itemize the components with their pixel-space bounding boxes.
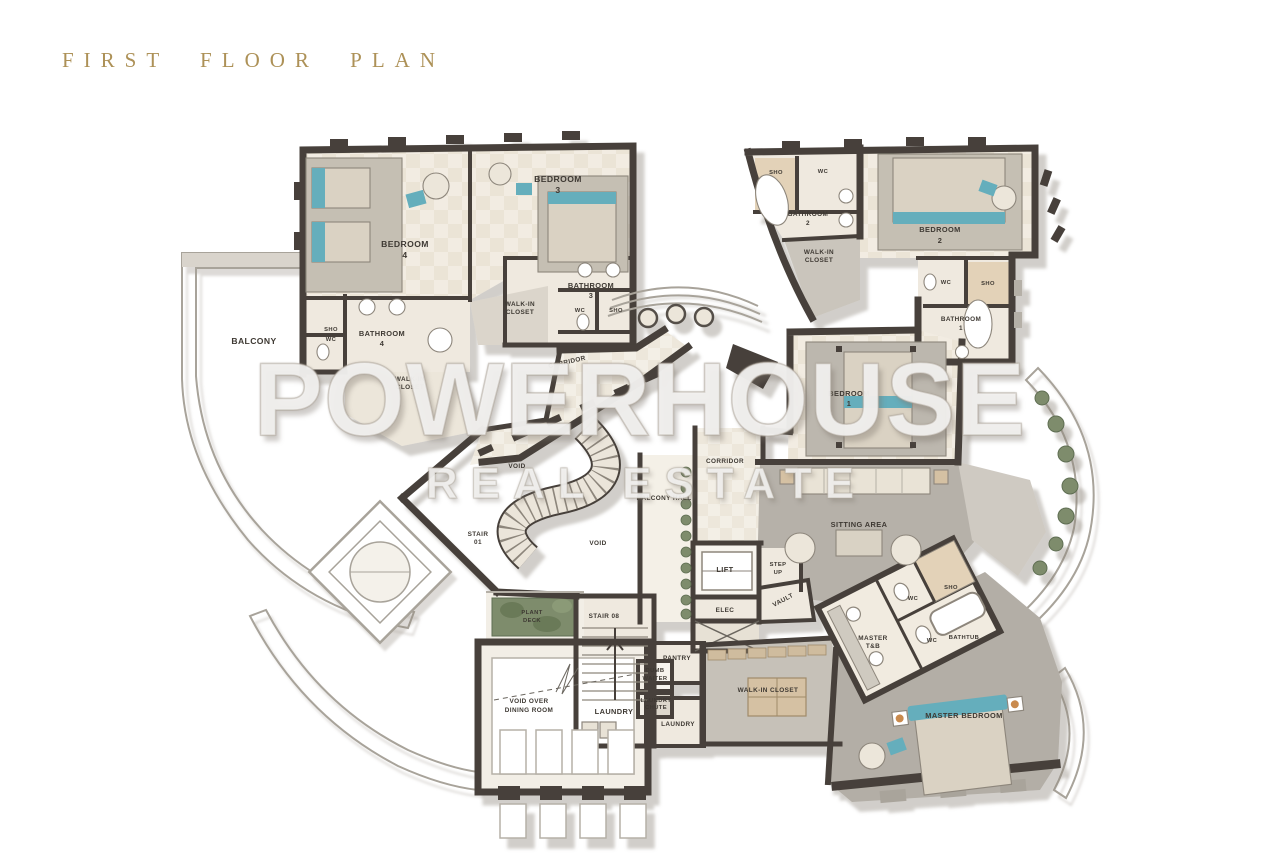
lift-label: LIFT: [716, 565, 733, 574]
sho-b4-label: SHO: [324, 327, 338, 333]
balcony-hall-label: BALCONY HALL: [636, 495, 691, 502]
bathroom-2-label: BATHROOM: [788, 211, 828, 218]
building-mass: [294, 131, 1078, 838]
bedroom-2-label: BEDROOM: [919, 225, 960, 234]
bathroom-2-num: 2: [806, 220, 810, 227]
bedroom-3-chair: [489, 163, 511, 185]
terrace-stone-floor: [958, 462, 1046, 576]
canopy-post: [836, 442, 842, 448]
plant-deck-green: [492, 598, 578, 636]
bedroom-4-chair: [423, 173, 449, 199]
pillow: [312, 168, 325, 208]
bathroom-1-toilet: [924, 274, 936, 290]
laundry-chute-label: LAUNDRY: [641, 698, 672, 704]
plant-deck-label2: DECK: [523, 618, 541, 624]
bathroom-1-sink: [956, 346, 969, 359]
column: [667, 305, 685, 323]
dumb-waiter-label2: WAITER: [643, 676, 668, 682]
step-up-label2: UP: [774, 570, 783, 576]
laundry-chute-label2: CHUTE: [645, 705, 667, 711]
wc-b1-label: WC: [941, 280, 952, 286]
bathroom-2-sink: [839, 189, 853, 203]
bathroom-1-label: BATHROOM: [941, 316, 981, 323]
sho-b1-label: SHO: [981, 281, 995, 287]
sitting-area-label: SITTING AREA: [831, 520, 888, 529]
bathroom-3-sink: [578, 263, 592, 277]
pillow: [893, 212, 1005, 224]
wc-m1-label: WC: [908, 596, 919, 602]
side-table: [934, 470, 948, 484]
stair-01-num: 01: [474, 539, 482, 546]
bedroom-4-label: BEDROOM: [381, 239, 429, 249]
bedroom-4-num: 4: [402, 250, 407, 260]
sho-b3-label: SHO: [609, 308, 623, 314]
wc-m2-label: WC: [927, 638, 938, 644]
bedroom-3-ottoman: [516, 183, 532, 195]
bathroom-4-toilet: [317, 344, 329, 360]
laundry-1-label: LAUNDRY: [595, 707, 634, 716]
bathroom-3-sink: [606, 263, 620, 277]
walkin-b2-label: WALK-IN: [804, 249, 834, 256]
corridor-right-floor: [695, 428, 763, 548]
plant-deck-label: PLANT: [521, 610, 542, 616]
wc-b3-label: WC: [575, 308, 586, 314]
balcony-left-top-band: [182, 253, 302, 267]
pillow: [312, 222, 325, 262]
pantry-label: PANTRY: [663, 655, 691, 662]
bedroom-2-num: 2: [938, 236, 943, 245]
bathroom-4-num: 4: [380, 339, 385, 348]
walkin-b4-label: WALK-IN: [395, 376, 425, 383]
corridor-right-label: CORRIDOR: [706, 458, 744, 465]
bathroom-3-label: BATHROOM: [568, 281, 614, 290]
balcony-bottom-left-band: [250, 610, 478, 790]
column: [639, 309, 657, 327]
balcony-label: BALCONY: [231, 336, 276, 346]
bathroom-4-label: BATHROOM: [359, 329, 405, 338]
walkin-b4-label2: CLOSET: [396, 384, 424, 391]
dumb-waiter-label: DUMB: [646, 668, 665, 674]
bedroom-1-num: 1: [847, 399, 852, 408]
bathroom-4-tub: [428, 328, 452, 352]
sitting-chair: [891, 535, 921, 565]
bathroom-1-num: 1: [959, 325, 963, 332]
master-bedroom-label: MASTER BEDROOM: [925, 711, 1002, 720]
entry-wall-wedge: [726, 344, 778, 389]
bathroom-3-toilet: [577, 314, 589, 330]
walkin-master-label: WALK-IN CLOSET: [738, 687, 799, 694]
floor-plan-page: FIRST FLOOR PLAN: [0, 0, 1280, 853]
void-dining-label: VOID OVER: [509, 698, 548, 705]
master-chair: [859, 743, 885, 769]
void-lower-label: VOID: [589, 540, 606, 547]
master-tb-label: MASTER: [858, 635, 887, 642]
wc-b4-label: WC: [326, 337, 337, 343]
void-upper-label: VOID: [508, 463, 525, 470]
side-table: [780, 470, 794, 484]
bathroom-4-sink: [359, 299, 375, 315]
walkin-b2-label2: CLOSET: [805, 257, 833, 264]
sho-m-label: SHO: [944, 585, 958, 591]
bedroom-3-num: 3: [555, 185, 560, 195]
bathroom-4-sink: [389, 299, 405, 315]
column: [695, 308, 713, 326]
coffee-table: [836, 530, 882, 556]
canopy-post: [836, 346, 842, 352]
stair-08-label: STAIR 08: [589, 613, 620, 620]
void-dining-label2: DINING ROOM: [505, 707, 553, 714]
laundry-2-label: LAUNDRY: [661, 721, 695, 728]
bathroom-1-tub: [964, 300, 992, 348]
bedroom-3-label: BEDROOM: [534, 174, 582, 184]
sitting-sofa: [798, 468, 930, 494]
canopy-post: [910, 442, 916, 448]
sho-b2-label: SHO: [769, 170, 783, 176]
wc-b2-label: WC: [818, 169, 829, 175]
master-tb-label2: T&B: [866, 643, 880, 650]
walkin-b3-label: WALK-IN: [505, 301, 535, 308]
sitting-chair: [785, 533, 815, 563]
elec-label: ELEC: [716, 607, 735, 614]
canopy-post: [910, 346, 916, 352]
stair-01-label: STAIR: [468, 531, 489, 538]
floor-plan-drawing: BEDROOM 4 BEDROOM 3 BATHROOM 3 BATHROOM …: [0, 0, 1280, 853]
bathroom-3-num: 3: [589, 291, 594, 300]
bathroom-2-sink: [839, 213, 853, 227]
terrace-plants: [1033, 391, 1078, 575]
bedroom-1-label: BEDROOM: [828, 389, 869, 398]
page-title: FIRST FLOOR PLAN: [62, 48, 445, 73]
step-up-label: STEP: [770, 562, 787, 568]
walkin-b3-label2: CLOSET: [506, 309, 534, 316]
bathtub-label: BATHTUB: [949, 635, 979, 641]
